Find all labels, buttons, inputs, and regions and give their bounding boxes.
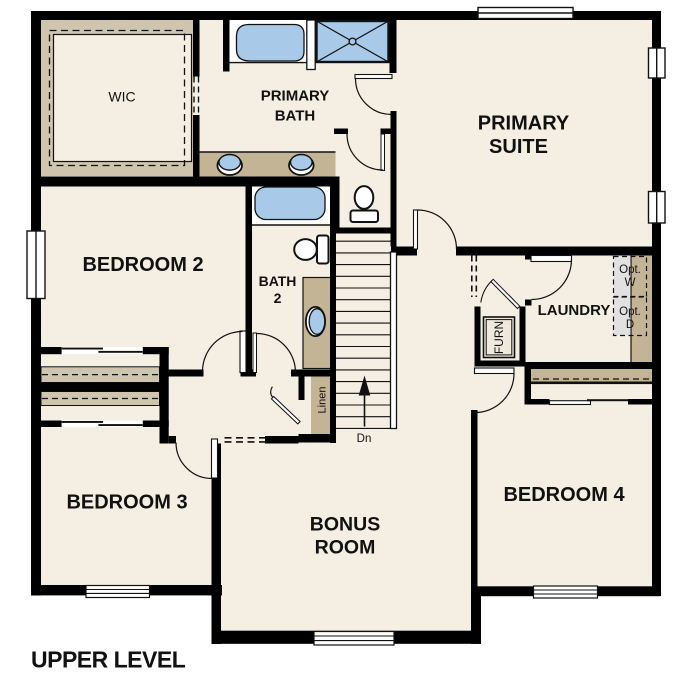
svg-text:ROOM: ROOM — [315, 537, 376, 559]
svg-text:Dn: Dn — [357, 433, 372, 445]
svg-text:2: 2 — [274, 290, 282, 306]
svg-text:BEDROOM 3: BEDROOM 3 — [66, 492, 187, 514]
svg-text:Opt.: Opt. — [619, 264, 641, 276]
svg-text:LAUNDRY: LAUNDRY — [538, 302, 611, 319]
svg-text:SUITE: SUITE — [489, 136, 548, 158]
svg-text:Opt.: Opt. — [619, 306, 641, 318]
svg-text:BEDROOM 4: BEDROOM 4 — [503, 484, 625, 506]
svg-text:WIC: WIC — [108, 89, 135, 105]
svg-text:W: W — [625, 277, 636, 289]
svg-text:D: D — [626, 319, 634, 331]
svg-text:BATH: BATH — [275, 108, 316, 125]
svg-text:BEDROOM 2: BEDROOM 2 — [82, 254, 203, 276]
svg-text:PRIMARY: PRIMARY — [261, 88, 330, 105]
svg-text:Linen: Linen — [317, 387, 329, 414]
svg-text:UPPER LEVEL: UPPER LEVEL — [31, 647, 186, 673]
svg-text:FURN: FURN — [492, 321, 506, 354]
svg-text:BONUS: BONUS — [310, 514, 380, 536]
svg-text:PRIMARY: PRIMARY — [478, 113, 570, 135]
svg-text:BATH: BATH — [259, 273, 297, 289]
